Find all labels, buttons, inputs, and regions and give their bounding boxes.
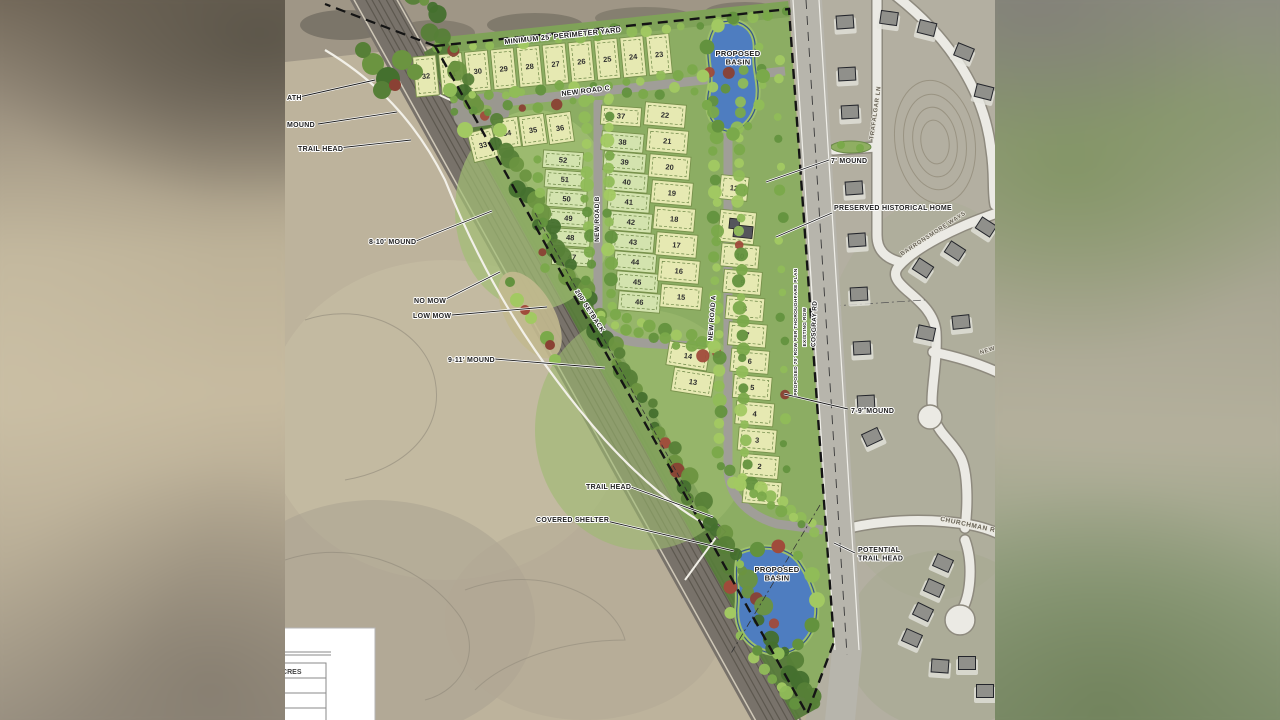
tree-icon	[579, 111, 591, 123]
tree-icon	[538, 218, 548, 228]
tree-icon	[724, 607, 736, 619]
tree-icon	[736, 631, 745, 640]
tree-icon	[712, 120, 725, 133]
tree-icon	[605, 151, 615, 161]
tree-icon	[484, 90, 494, 100]
tree-icon	[726, 127, 740, 141]
lot-number: 2	[757, 462, 762, 471]
tree-icon	[535, 188, 545, 198]
tree-icon	[778, 212, 789, 223]
tree-icon	[583, 152, 593, 162]
tree-icon	[778, 496, 789, 507]
tree-icon	[744, 122, 752, 130]
tree-icon	[735, 184, 748, 197]
tree-icon	[604, 217, 613, 226]
tree-icon	[771, 540, 785, 554]
lot-number: 51	[560, 175, 569, 185]
house-footprint	[845, 181, 863, 195]
legend-panel: ACRES	[285, 628, 375, 720]
lot-number: 3	[755, 436, 760, 445]
house	[956, 657, 978, 676]
tree-icon	[750, 542, 765, 557]
lot-number: 49	[564, 214, 573, 224]
map-label-path: ATH	[287, 95, 302, 102]
tree-icon	[641, 26, 652, 37]
tree-icon	[638, 89, 648, 99]
tree-icon	[622, 313, 632, 323]
lot-number: 16	[674, 266, 683, 276]
tree-icon	[604, 93, 614, 103]
tree-icon	[721, 84, 731, 94]
house-footprint	[959, 657, 976, 670]
cul-de-sac	[918, 405, 942, 429]
tree-icon	[783, 465, 791, 473]
tree-icon	[738, 393, 750, 405]
tree-icon	[789, 698, 801, 710]
tree-icon	[740, 448, 749, 457]
tree-icon	[450, 44, 459, 53]
tree-icon	[711, 236, 721, 246]
tree-icon	[734, 248, 748, 262]
house-footprint	[848, 233, 866, 247]
lot-number: 35	[528, 125, 538, 135]
tree-icon	[677, 23, 685, 31]
tree-icon	[774, 185, 785, 196]
tree-icon	[738, 78, 749, 89]
map-label-existing-row: EXISTING ROW	[802, 307, 808, 346]
lot: 24	[620, 36, 647, 78]
tree-icon	[669, 441, 682, 454]
lot-number: 27	[551, 59, 560, 69]
house	[928, 659, 951, 679]
lot-number: 15	[677, 292, 686, 302]
lot-number: 18	[670, 214, 679, 224]
tree-icon	[686, 340, 698, 352]
tree-icon	[710, 175, 721, 186]
tree-icon	[710, 276, 719, 285]
legend-header-label: ACRES	[285, 669, 302, 676]
lot: 46	[618, 291, 661, 314]
blurred-backdrop-right-fill	[995, 0, 1280, 720]
lot-number: 41	[624, 197, 633, 207]
tree-icon	[545, 340, 555, 350]
tree-icon	[734, 158, 744, 168]
tree-icon	[780, 413, 791, 424]
lot-number: 22	[660, 110, 669, 120]
lot-number: 26	[577, 57, 586, 67]
house	[846, 233, 869, 253]
tree-icon	[649, 408, 659, 418]
tree-icon	[697, 22, 705, 30]
lot-number: 28	[525, 62, 534, 72]
tree-icon	[805, 618, 820, 633]
lot-number: 21	[663, 136, 672, 146]
tree-icon	[671, 330, 682, 341]
tree-icon	[733, 170, 745, 182]
tree-icon	[462, 73, 474, 85]
tree-icon	[713, 351, 727, 365]
tree-icon	[856, 144, 864, 152]
tree-icon	[643, 320, 656, 333]
lot-number: 52	[559, 155, 568, 165]
lot: 29	[490, 48, 517, 90]
tree-icon	[587, 95, 595, 103]
tree-icon	[533, 155, 541, 163]
tree-icon	[604, 189, 616, 201]
lot-number: 44	[631, 257, 641, 267]
lot: 52	[542, 150, 583, 170]
tree-icon	[779, 289, 787, 297]
lot: 35	[519, 113, 548, 146]
house-footprint	[841, 105, 859, 119]
tree-icon	[637, 392, 648, 403]
map-label-mound-7-9: 7-9' MOUND	[851, 408, 894, 415]
house	[834, 15, 857, 35]
tree-icon	[605, 230, 618, 243]
tree-icon	[715, 405, 728, 418]
tree-icon	[708, 251, 719, 262]
lot: 19	[650, 180, 693, 206]
tree-icon	[735, 107, 746, 118]
lot-number: 17	[672, 240, 681, 250]
lot-number: 29	[499, 64, 508, 74]
house	[839, 105, 862, 125]
tree-icon	[775, 55, 785, 65]
lot-number: 13	[688, 377, 698, 387]
tree-icon	[734, 478, 747, 491]
tree-icon	[355, 42, 371, 58]
tree-icon	[793, 551, 803, 561]
tree-icon	[601, 243, 615, 257]
map-label-low-mow: LOW MOW	[413, 313, 451, 320]
tree-icon	[837, 141, 845, 149]
tree-icon	[776, 313, 785, 322]
tree-icon	[809, 592, 825, 608]
tree-icon	[450, 108, 458, 116]
tree-icon	[759, 664, 770, 675]
tree-icon	[724, 580, 738, 594]
tree-icon	[713, 393, 727, 407]
tree-icon	[809, 527, 819, 537]
lot-number: 39	[620, 157, 629, 167]
tree-icon	[493, 123, 507, 137]
tree-icon	[485, 41, 494, 50]
map-label-potential-trail-head: POTENTIALTRAIL HEAD	[858, 547, 903, 563]
tree-icon	[691, 88, 699, 96]
tree-icon	[740, 435, 752, 447]
tree-icon	[602, 209, 611, 218]
house-footprint	[836, 15, 854, 29]
lot-number: 19	[667, 188, 676, 198]
tree-icon	[736, 264, 748, 276]
tree-icon	[584, 247, 595, 258]
map-label-covered-shelter: COVERED SHELTER	[536, 517, 609, 524]
tree-icon	[582, 139, 592, 149]
tree-icon	[469, 43, 477, 51]
tree-icon	[606, 289, 616, 299]
tree-icon	[777, 266, 785, 274]
tree-icon	[707, 211, 720, 224]
lot: 44	[613, 251, 656, 274]
lot: 21	[646, 128, 689, 154]
tree-icon	[708, 160, 720, 172]
lot: 20	[648, 154, 691, 180]
tree-icon	[757, 491, 767, 501]
lot-number: 38	[618, 137, 627, 147]
tree-icon	[648, 398, 658, 408]
tree-icon	[769, 618, 779, 628]
house	[949, 314, 973, 335]
lot: 42	[609, 211, 652, 234]
tree-icon	[581, 166, 593, 178]
map-label-line: BASIN	[726, 58, 751, 67]
lot: 43	[611, 231, 654, 254]
tree-icon	[614, 347, 626, 359]
tree-icon	[756, 69, 770, 83]
tree-icon	[779, 686, 793, 700]
house	[836, 67, 859, 87]
lot-number: 30	[473, 66, 482, 76]
tree-icon	[774, 135, 782, 143]
tree-icon	[533, 172, 544, 183]
tree-icon	[734, 404, 747, 417]
lot: 36	[546, 111, 575, 144]
house	[851, 341, 874, 361]
tree-icon	[551, 99, 562, 110]
tree-icon	[603, 176, 615, 188]
lot: 25	[594, 38, 621, 80]
tree-icon	[734, 226, 744, 236]
tree-icon	[519, 104, 526, 111]
median-mound	[831, 141, 871, 153]
map-label-line: POTENTIAL	[858, 547, 901, 554]
tree-icon	[714, 418, 724, 428]
tree-icon	[622, 78, 630, 86]
tree-icon	[509, 157, 524, 172]
tree-icon	[519, 169, 531, 181]
tree-icon	[510, 293, 524, 307]
tree-icon	[373, 81, 391, 99]
tree-icon	[740, 420, 749, 429]
tree-icon	[774, 113, 782, 121]
tree-icon	[604, 273, 618, 287]
map-label-new-road-b: NEW ROAD B	[594, 196, 601, 242]
tree-icon	[538, 248, 546, 256]
house	[974, 685, 995, 704]
tree-icon	[570, 97, 577, 104]
lot: 17	[655, 232, 698, 258]
tree-icon	[798, 520, 806, 528]
house	[876, 10, 900, 31]
tree-icon	[732, 274, 745, 287]
map-label-preserved-historical-home: PRESERVED HISTORICAL HOME	[834, 205, 952, 212]
tree-icon	[700, 40, 715, 55]
lot-number: 46	[635, 297, 644, 307]
tree-icon	[737, 315, 750, 328]
lot-number: 20	[665, 162, 674, 172]
tree-icon	[737, 330, 749, 342]
tree-icon	[712, 263, 720, 271]
tree-icon	[724, 465, 735, 476]
map-label-line: BASIN	[765, 574, 790, 583]
map-label-trail-head-north: TRAIL HEAD	[298, 146, 343, 153]
lot: 18	[653, 206, 696, 232]
tree-icon	[735, 97, 746, 108]
tree-icon	[468, 91, 476, 99]
house	[843, 181, 866, 201]
tree-icon	[775, 505, 787, 517]
site-plan-svg: 3231302928272625242333343536525150494847…	[285, 0, 995, 720]
tree-icon	[767, 674, 777, 684]
lot: 51	[544, 169, 585, 189]
tree-icon	[581, 276, 591, 286]
tree-icon	[604, 123, 613, 132]
lot: 22	[644, 102, 687, 128]
map-label-mound-west: MOUND	[287, 122, 315, 129]
tree-icon	[600, 134, 614, 148]
tree-icon	[713, 380, 724, 391]
tree-icon	[687, 64, 698, 75]
tree-icon	[738, 383, 748, 393]
tree-icon	[711, 225, 724, 238]
tree-icon	[804, 567, 820, 583]
lot-number: 43	[628, 237, 637, 247]
house-footprint	[952, 315, 970, 330]
map-label-mound-9-11: 9-11' MOUND	[448, 357, 495, 364]
lot: 15	[660, 284, 703, 310]
lot-number: 45	[633, 277, 642, 287]
tree-icon	[708, 146, 717, 155]
tree-icon	[603, 163, 614, 174]
tree-icon	[611, 321, 619, 329]
tree-icon	[673, 70, 684, 81]
tree-icon	[686, 329, 698, 341]
lot: 6	[730, 348, 770, 374]
tree-icon	[781, 337, 790, 346]
tree-icon	[626, 26, 637, 37]
lot: 28	[516, 45, 543, 87]
tree-icon	[789, 513, 798, 522]
tree-icon	[697, 70, 710, 83]
tree-icon	[739, 65, 749, 75]
tree-icon	[620, 324, 632, 336]
tree-icon	[580, 195, 588, 203]
lot-number: 42	[626, 217, 635, 227]
tree-icon	[533, 203, 544, 214]
tree-icon	[546, 219, 561, 234]
lot: 23	[646, 33, 673, 75]
tree-icon	[533, 102, 544, 113]
tree-icon	[713, 364, 725, 376]
lot: 26	[568, 41, 595, 83]
tree-icon	[636, 77, 645, 86]
lot-number: 37	[617, 111, 626, 121]
tree-icon	[655, 90, 665, 100]
tree-icon	[407, 64, 423, 80]
lot-number: 40	[622, 177, 631, 187]
tree-icon	[736, 560, 744, 568]
tree-icon	[633, 327, 643, 337]
house	[848, 287, 871, 307]
tree-icon	[738, 354, 746, 362]
blurred-backdrop-left	[0, 0, 285, 720]
tree-icon	[672, 342, 680, 350]
tree-icon	[580, 178, 594, 192]
tree-icon	[505, 277, 515, 287]
tree-icon	[711, 19, 724, 32]
lot-number: 36	[555, 123, 565, 133]
house-footprint	[838, 67, 856, 81]
tree-icon	[712, 446, 724, 458]
lot: 45	[615, 271, 658, 294]
tree-icon	[767, 501, 775, 509]
site-plan-map: 3231302928272625242333343536525150494847…	[285, 0, 995, 720]
tree-icon	[503, 100, 513, 110]
tree-icon	[535, 85, 546, 96]
tree-icon	[587, 260, 596, 269]
map-label-mound-7: 7' MOUND	[831, 158, 867, 165]
tree-icon	[780, 366, 788, 374]
tree-icon	[734, 144, 745, 155]
tree-icon	[605, 112, 615, 122]
lot-number: 25	[603, 54, 612, 64]
tree-icon	[662, 25, 671, 34]
house-footprint	[853, 341, 871, 355]
house-footprint	[916, 325, 935, 341]
tree-icon	[792, 639, 804, 651]
lot-number: 5	[750, 383, 755, 392]
lot-number: 48	[566, 233, 575, 243]
house-footprint	[977, 685, 994, 698]
tree-icon	[389, 79, 401, 91]
blurred-backdrop-left-fill	[0, 0, 285, 720]
house-footprint	[850, 287, 868, 301]
tree-icon	[457, 122, 473, 138]
house-footprint	[931, 659, 949, 673]
tree-icon	[659, 332, 671, 344]
tree-icon	[605, 257, 618, 270]
tree-icon	[554, 80, 564, 90]
tree-icon	[656, 71, 666, 81]
tree-icon	[774, 236, 783, 245]
tree-icon	[581, 123, 592, 134]
tree-icon	[736, 366, 748, 378]
map-label-line: TRAIL HEAD	[858, 556, 903, 563]
tree-icon	[737, 293, 745, 301]
tree-icon	[737, 214, 746, 223]
tree-icon	[622, 87, 632, 97]
tree-icon	[752, 645, 762, 655]
tree-icon	[723, 67, 735, 79]
tree-icon	[731, 195, 743, 207]
lot-number: 6	[747, 357, 752, 366]
tree-icon	[774, 74, 784, 84]
tree-icon	[713, 198, 722, 207]
blurred-backdrop-right	[995, 0, 1280, 720]
tree-icon	[714, 433, 725, 444]
map-label-trail-head-south: TRAIL HEAD	[586, 484, 631, 491]
tree-icon	[717, 462, 725, 470]
cul-de-sac	[945, 605, 975, 635]
tree-icon	[702, 100, 712, 110]
lot-number: 50	[562, 194, 571, 204]
tree-icon	[777, 163, 785, 171]
tree-icon	[715, 330, 724, 339]
tree-icon	[733, 301, 747, 315]
map-label-mound-8-10: 8-10' MOUND	[369, 239, 416, 246]
lot-number: 23	[655, 50, 664, 60]
tree-icon	[443, 83, 457, 97]
